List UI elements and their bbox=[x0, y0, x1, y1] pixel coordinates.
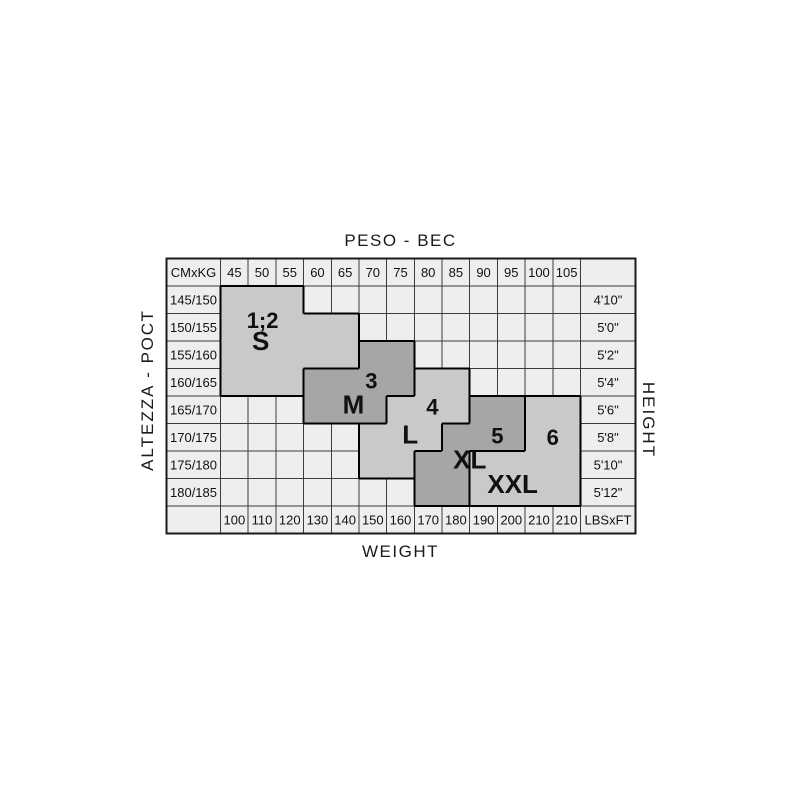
height-ft-value: 5'4" bbox=[597, 375, 619, 390]
kg-value: 55 bbox=[282, 265, 296, 280]
height-cm-value: 155/160 bbox=[170, 347, 217, 362]
height-axis-title-left: ALTEZZA - РОСТ bbox=[138, 305, 158, 475]
height-ft-value: 5'2" bbox=[597, 347, 619, 362]
kg-value: 60 bbox=[310, 265, 324, 280]
kg-value: 45 bbox=[227, 265, 241, 280]
size-region-S bbox=[221, 341, 359, 369]
size-region-L bbox=[359, 451, 414, 479]
height-cm-value: 170/175 bbox=[170, 430, 217, 445]
size-region-XL bbox=[470, 396, 525, 424]
size-label-M: 3 bbox=[365, 368, 377, 393]
height-axis-title-right: HEIGHT bbox=[638, 335, 658, 505]
lbs-value: 180 bbox=[445, 512, 467, 527]
kg-value: 80 bbox=[421, 265, 435, 280]
lbs-value: 200 bbox=[500, 512, 522, 527]
lbs-value: 150 bbox=[362, 512, 384, 527]
kg-value: 85 bbox=[449, 265, 463, 280]
size-label-S: S bbox=[252, 326, 269, 356]
lbs-value: 130 bbox=[307, 512, 329, 527]
height-cm-value: 180/185 bbox=[170, 485, 217, 500]
size-region-L bbox=[414, 369, 469, 397]
height-ft-value: 5'8" bbox=[597, 430, 619, 445]
lbs-value: 210 bbox=[556, 512, 578, 527]
size-chart-canvas: PESO - ВЕС WEIGHT ALTEZZA - РОСТ HEIGHT … bbox=[0, 0, 800, 800]
kg-value: 65 bbox=[338, 265, 352, 280]
size-label-M: M bbox=[343, 389, 365, 419]
kg-value: 100 bbox=[528, 265, 550, 280]
height-cm-value: 160/165 bbox=[170, 375, 217, 390]
corner-lbsxft: LBSxFT bbox=[585, 512, 632, 527]
size-label-XXL: XXL bbox=[487, 469, 538, 499]
kg-value: 90 bbox=[476, 265, 490, 280]
height-ft-value: 5'0" bbox=[597, 320, 619, 335]
size-label-XXL: 6 bbox=[547, 425, 559, 450]
size-label-XL: XL bbox=[453, 444, 486, 474]
size-label-L: L bbox=[402, 420, 418, 450]
kg-value: 50 bbox=[255, 265, 269, 280]
weight-axis-title-bottom: WEIGHT bbox=[166, 542, 635, 562]
lbs-value: 110 bbox=[252, 512, 273, 527]
height-ft-value: 5'10" bbox=[594, 457, 623, 472]
weight-axis-title-top: PESO - ВЕС bbox=[166, 231, 635, 251]
kg-value: 75 bbox=[393, 265, 407, 280]
size-label-XL: 5 bbox=[491, 423, 503, 448]
lbs-value: 140 bbox=[334, 512, 356, 527]
size-region-L bbox=[359, 424, 442, 452]
lbs-value: 120 bbox=[279, 512, 301, 527]
kg-value: 105 bbox=[556, 265, 578, 280]
size-region-S bbox=[221, 369, 304, 397]
size-region-S bbox=[221, 314, 359, 342]
lbs-value: 170 bbox=[417, 512, 439, 527]
height-ft-value: 4'10" bbox=[594, 292, 623, 307]
size-region-XL bbox=[414, 479, 469, 507]
height-cm-value: 165/170 bbox=[170, 402, 217, 417]
height-ft-value: 5'6" bbox=[597, 402, 619, 417]
lbs-value: 210 bbox=[528, 512, 550, 527]
kg-value: 70 bbox=[366, 265, 380, 280]
size-region-XXL bbox=[525, 396, 580, 424]
corner-cmxkg: CMxKG bbox=[171, 265, 217, 280]
size-region-M bbox=[359, 341, 414, 369]
size-label-L: 4 bbox=[426, 395, 439, 420]
kg-value: 95 bbox=[504, 265, 518, 280]
height-cm-value: 145/150 bbox=[170, 292, 217, 307]
lbs-value: 190 bbox=[473, 512, 495, 527]
height-ft-value: 5'12" bbox=[594, 485, 623, 500]
size-chart-table: CMxKG4550556065707580859095100105145/150… bbox=[164, 256, 638, 536]
lbs-value: 100 bbox=[223, 512, 245, 527]
lbs-value: 160 bbox=[390, 512, 412, 527]
height-cm-value: 150/155 bbox=[170, 320, 217, 335]
height-cm-value: 175/180 bbox=[170, 457, 217, 472]
